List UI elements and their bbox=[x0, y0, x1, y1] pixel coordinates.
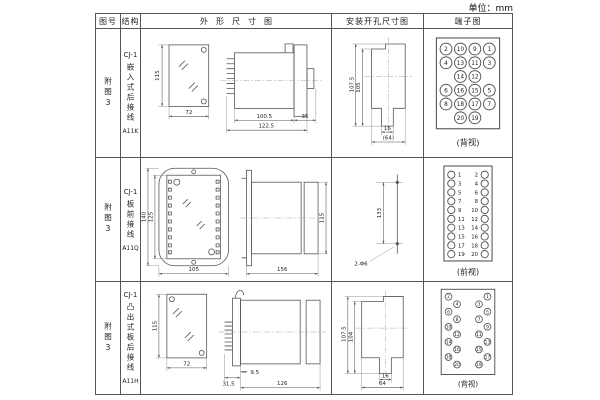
dimension-arrow bbox=[382, 241, 384, 244]
terminal-number: 18 bbox=[471, 243, 478, 249]
terminal-circle bbox=[481, 233, 488, 240]
terminal-number: 3 bbox=[458, 182, 461, 188]
terminal-number: 14 bbox=[457, 75, 465, 81]
terminal-number: 12 bbox=[471, 75, 479, 81]
row3-structure: CJ-1 凸出式板后接线 A11H bbox=[121, 282, 141, 394]
terminal-view-label: (背视) bbox=[458, 380, 478, 389]
terminal-number: 19 bbox=[471, 116, 479, 122]
terminal-number: 5 bbox=[458, 190, 461, 196]
terminal-number: 13 bbox=[485, 339, 491, 345]
terminal-circle bbox=[481, 251, 488, 258]
terminal-number: 2 bbox=[475, 173, 478, 179]
install-dimensions: 107.5 105 16 (64) bbox=[349, 44, 405, 145]
dim-pin-depth: 31.5 bbox=[222, 382, 234, 388]
dimension-arrow bbox=[158, 294, 160, 297]
dim-front-width: 105 bbox=[188, 267, 198, 273]
row1-structure: CJ-1 嵌入式后接线 A11K bbox=[121, 29, 141, 158]
dimension-arrow bbox=[246, 273, 249, 275]
dim-front-width: 72 bbox=[185, 110, 192, 116]
dimension-arrow bbox=[362, 49, 364, 52]
install-drawing-a11h: 107.5 104 16 64 bbox=[332, 282, 423, 394]
dim-body-depth: 126 bbox=[277, 381, 288, 387]
dim-front-width: 72 bbox=[183, 361, 190, 367]
terminal-circle bbox=[481, 180, 488, 187]
document-page: 单位：mm 图号 结构 外形尺寸图 安装开孔尺寸图 端子图 附图3 CJ-1 嵌… bbox=[0, 0, 600, 400]
figure-label: 附图3 bbox=[103, 322, 114, 355]
dimension-arrow bbox=[226, 273, 229, 275]
spec-table: 图号 结构 外形尺寸图 安装开孔尺寸图 端子图 附图3 CJ-1 嵌入式后接线 … bbox=[95, 13, 513, 395]
row2-outline-cell: 140 125 105 bbox=[141, 158, 332, 282]
terminal-number: 20 bbox=[471, 252, 478, 258]
dimension-arrow bbox=[159, 273, 162, 275]
row3-install-cell: 107.5 104 16 64 bbox=[332, 282, 424, 394]
terminal-number: 6 bbox=[447, 309, 450, 315]
terminal-number: 15 bbox=[458, 234, 465, 240]
terminal-drawing-rear: 2468101214161820135791113151719 (背视) bbox=[424, 282, 512, 394]
terminal-circle bbox=[481, 171, 488, 178]
dim-body-length: 156 bbox=[277, 267, 288, 273]
terminal-number: 4 bbox=[475, 182, 479, 188]
terminal-number: 20 bbox=[454, 362, 460, 368]
terminal-number: 17 bbox=[471, 102, 479, 108]
terminal-number: 9 bbox=[486, 324, 489, 330]
terminal-number: 11 bbox=[471, 61, 479, 67]
header-outline: 外形尺寸图 bbox=[141, 14, 332, 29]
terminal-number: 10 bbox=[471, 208, 478, 214]
terminal-number: 5 bbox=[487, 88, 491, 94]
terminal-drawing-front: 1357911131517192468101214161820 (前视) bbox=[424, 158, 512, 281]
dim-inner-height: 104 bbox=[348, 331, 354, 342]
dimension-arrow bbox=[244, 371, 247, 373]
side-view: 9.5 31.5 126 bbox=[219, 290, 326, 390]
terminal-circle bbox=[448, 189, 455, 196]
dimension-arrow bbox=[147, 168, 149, 171]
header-structure: 结构 bbox=[121, 14, 141, 29]
terminal-circle bbox=[448, 206, 455, 213]
side-view: 100.5 122.5 35 bbox=[221, 44, 322, 133]
install-drawing-a11q: 133 2-Φ6 bbox=[332, 158, 423, 281]
cutout-shape bbox=[356, 291, 409, 381]
front-view: 115 72 bbox=[155, 45, 209, 119]
terminal-number: 6 bbox=[444, 88, 448, 94]
dimension-arrow bbox=[154, 175, 156, 178]
install-drawing-a11k: 107.5 105 16 (64) bbox=[332, 29, 423, 157]
dimension-arrow bbox=[372, 141, 375, 143]
dimension-arrow bbox=[355, 123, 357, 126]
row3-figure-no: 附图3 bbox=[96, 282, 121, 394]
terminal-number: 1 bbox=[486, 294, 489, 300]
terminal-circle bbox=[481, 242, 488, 249]
dim-hole-spec: 2-Φ6 bbox=[354, 261, 368, 267]
outline-drawing-a11k: 115 72 100.5 bbox=[141, 29, 331, 157]
terminal-number: 7 bbox=[487, 102, 491, 108]
row2-install-cell: 133 2-Φ6 bbox=[332, 158, 424, 282]
mount-type-label: 凸出式板后接线 bbox=[125, 303, 136, 373]
terminal-view-label: (前视) bbox=[457, 266, 479, 276]
row2-structure: CJ-1 板前接线 A11Q bbox=[121, 158, 141, 282]
dimension-arrow bbox=[169, 115, 172, 117]
dimension-arrow bbox=[325, 182, 327, 185]
terminal-number: 15 bbox=[476, 347, 482, 353]
terminal-drawing-rear: 2109141311314126161558181772019 (背视) bbox=[424, 29, 512, 157]
terminal-number: 9 bbox=[473, 47, 477, 53]
terminal-circle bbox=[481, 198, 488, 205]
terminal-number: 8 bbox=[444, 102, 448, 108]
terminal-number: 14 bbox=[471, 226, 478, 232]
dimension-arrow bbox=[400, 386, 403, 388]
dim-step-depth: 9.5 bbox=[250, 370, 259, 376]
terminal-number: 11 bbox=[458, 217, 465, 223]
outline-drawing-a11q: 140 125 105 bbox=[141, 158, 331, 281]
terminal-number: 17 bbox=[458, 243, 465, 249]
dim-outer-height: 107.5 bbox=[349, 77, 355, 93]
dim-flange-depth: 35 bbox=[302, 114, 309, 120]
dimension-arrow bbox=[154, 256, 156, 259]
terminal-circle bbox=[448, 215, 455, 222]
terminal-number: 6 bbox=[475, 190, 479, 196]
dimension-arrow bbox=[304, 129, 307, 131]
dimension-arrow bbox=[354, 371, 356, 374]
terminal-circle bbox=[448, 224, 455, 231]
terminal-number: 13 bbox=[457, 61, 465, 67]
row1-figure-no: 附图3 bbox=[96, 29, 121, 158]
dimension-arrow bbox=[381, 131, 384, 133]
dimension-arrow bbox=[161, 103, 163, 106]
dim-outer-height: 107.5 bbox=[341, 326, 347, 342]
terminal-number: 20 bbox=[457, 116, 465, 122]
dimension-arrow bbox=[347, 371, 349, 374]
dimension-arrow bbox=[161, 45, 163, 48]
model-label: CJ-1 bbox=[124, 291, 138, 299]
model-label: CJ-1 bbox=[124, 51, 138, 59]
mount-type-label: 嵌入式后接线 bbox=[125, 63, 136, 123]
side-view: 156 115 bbox=[240, 170, 328, 276]
outline-drawing-a11h: 115 72 9.5 bbox=[141, 282, 331, 394]
row1-install-cell: 107.5 105 16 (64) bbox=[332, 29, 424, 158]
dim-front-inner-height: 125 bbox=[149, 212, 155, 222]
terminal-number: 14 bbox=[446, 339, 452, 345]
header-figure-no: 图号 bbox=[96, 14, 121, 29]
dimension-arrow bbox=[158, 355, 160, 358]
terminal-number: 15 bbox=[471, 88, 479, 94]
dimension-arrow bbox=[325, 251, 327, 254]
front-view: 115 72 bbox=[152, 294, 206, 371]
mount-type-label: 板前接线 bbox=[125, 200, 136, 240]
terminal-number: 7 bbox=[458, 199, 461, 205]
terminal-number: 4 bbox=[456, 302, 459, 308]
terminal-circle bbox=[481, 206, 488, 213]
terminal-circle bbox=[448, 171, 455, 178]
dim-slot-width: 16 bbox=[382, 374, 389, 380]
terminal-number: 4 bbox=[444, 61, 448, 67]
row3-outline-cell: 115 72 9.5 bbox=[141, 282, 332, 394]
dim-total-depth: 122.5 bbox=[258, 124, 274, 130]
dimension-arrow bbox=[235, 119, 238, 121]
terminal-number: 16 bbox=[471, 234, 478, 240]
dim-front-height: 115 bbox=[152, 321, 158, 331]
terminal-grid: 1357911131517192468101214161820 bbox=[448, 171, 489, 258]
terminal-number: 10 bbox=[457, 47, 465, 53]
terminal-number: 18 bbox=[446, 355, 452, 361]
dimension-arrow bbox=[227, 129, 230, 131]
code-label: A11H bbox=[122, 378, 138, 385]
dimension-arrow bbox=[402, 141, 405, 143]
dimension-arrow bbox=[167, 367, 170, 369]
dimension-arrow bbox=[362, 123, 364, 126]
dimension-arrow bbox=[354, 301, 356, 304]
terminal-number: 12 bbox=[471, 217, 478, 223]
row3-terminal-cell: 2468101214161820135791113151719 (背视) bbox=[424, 282, 512, 394]
model-label: CJ-1 bbox=[124, 188, 138, 196]
dimension-arrow bbox=[291, 119, 294, 121]
dimension-arrow bbox=[315, 273, 318, 275]
install-dimensions: 107.5 104 16 64 bbox=[341, 296, 403, 390]
terminal-number: 10 bbox=[446, 324, 452, 330]
dimension-arrow bbox=[390, 131, 393, 133]
dim-opening-width: 64 bbox=[379, 381, 386, 387]
dimension-arrow bbox=[225, 377, 228, 379]
terminal-number: 2 bbox=[447, 294, 450, 300]
dim-inner-height: 105 bbox=[356, 82, 362, 92]
terminal-circle bbox=[448, 233, 455, 240]
row2-figure-no: 附图3 bbox=[96, 158, 121, 282]
dim-body-depth: 100.5 bbox=[256, 114, 272, 120]
terminal-circle bbox=[448, 180, 455, 187]
code-label: A11K bbox=[123, 128, 139, 135]
terminal-number: 19 bbox=[476, 362, 482, 368]
terminal-circle bbox=[481, 224, 488, 231]
hole-layout: 133 2-Φ6 bbox=[354, 174, 403, 267]
figure-label: 附图3 bbox=[103, 77, 114, 110]
terminal-number: 18 bbox=[457, 102, 465, 108]
terminal-number: 9 bbox=[458, 208, 462, 214]
dimension-arrow bbox=[204, 367, 207, 369]
figure-label: 附图3 bbox=[103, 203, 114, 236]
terminal-number: 2 bbox=[444, 47, 448, 53]
dim-hole-spacing: 133 bbox=[377, 207, 383, 218]
row2-terminal-cell: 1357911131517192468101214161820 (前视) bbox=[424, 158, 512, 282]
terminal-number: 1 bbox=[487, 47, 491, 53]
terminal-grid: 2109141311314126161558181772019 bbox=[440, 43, 495, 124]
terminal-circle bbox=[481, 189, 488, 196]
terminal-number: 13 bbox=[458, 226, 465, 232]
dimension-arrow bbox=[388, 379, 391, 381]
terminal-view-label: (背视) bbox=[457, 137, 480, 147]
dimension-arrow bbox=[237, 377, 240, 379]
dimension-arrow bbox=[317, 387, 320, 389]
terminal-number: 12 bbox=[454, 332, 460, 338]
terminal-number: 16 bbox=[457, 88, 465, 94]
terminal-grid: 2468101214161820135791113151719 bbox=[445, 293, 491, 368]
terminal-number: 5 bbox=[486, 309, 489, 315]
terminal-circle bbox=[481, 215, 488, 222]
terminal-number: 19 bbox=[458, 252, 465, 258]
dimension-arrow bbox=[313, 119, 316, 121]
dim-opening-width: (64) bbox=[383, 135, 394, 141]
terminal-number: 16 bbox=[454, 347, 460, 353]
terminal-number: 7 bbox=[478, 317, 481, 323]
terminal-number: 17 bbox=[485, 355, 491, 361]
header-terminal: 端子图 bbox=[424, 14, 512, 29]
terminal-number: 3 bbox=[478, 302, 481, 308]
terminal-circle bbox=[448, 251, 455, 258]
row1-terminal-cell: 2109141311314126161558181772019 (背视) bbox=[424, 29, 512, 158]
dimension-arrow bbox=[362, 386, 365, 388]
code-label: A11Q bbox=[122, 245, 138, 252]
dimension-arrow bbox=[240, 371, 243, 373]
dim-body-height: 115 bbox=[320, 213, 326, 223]
dimension-arrow bbox=[240, 387, 243, 389]
dimension-arrow bbox=[294, 119, 297, 121]
terminal-number: 11 bbox=[476, 332, 482, 338]
front-view: 140 125 105 bbox=[141, 168, 228, 276]
dim-slot-width: 16 bbox=[384, 126, 391, 132]
header-install: 安装开孔尺寸图 bbox=[332, 14, 424, 29]
dimension-arrow bbox=[347, 296, 349, 299]
terminal-number: 1 bbox=[458, 173, 461, 179]
terminal-circle bbox=[448, 198, 455, 205]
dimension-arrow bbox=[355, 44, 357, 47]
terminal-circle bbox=[448, 242, 455, 249]
dimension-arrow bbox=[147, 263, 149, 266]
row1-outline-cell: 115 72 100.5 bbox=[141, 29, 332, 158]
dimension-arrow bbox=[206, 115, 209, 117]
dim-front-height: 115 bbox=[155, 70, 161, 80]
terminal-number: 8 bbox=[456, 317, 459, 323]
dimension-arrow bbox=[382, 182, 384, 185]
terminal-number: 3 bbox=[487, 61, 491, 67]
terminal-number: 8 bbox=[475, 199, 479, 205]
dim-front-outer-height: 140 bbox=[141, 211, 147, 222]
